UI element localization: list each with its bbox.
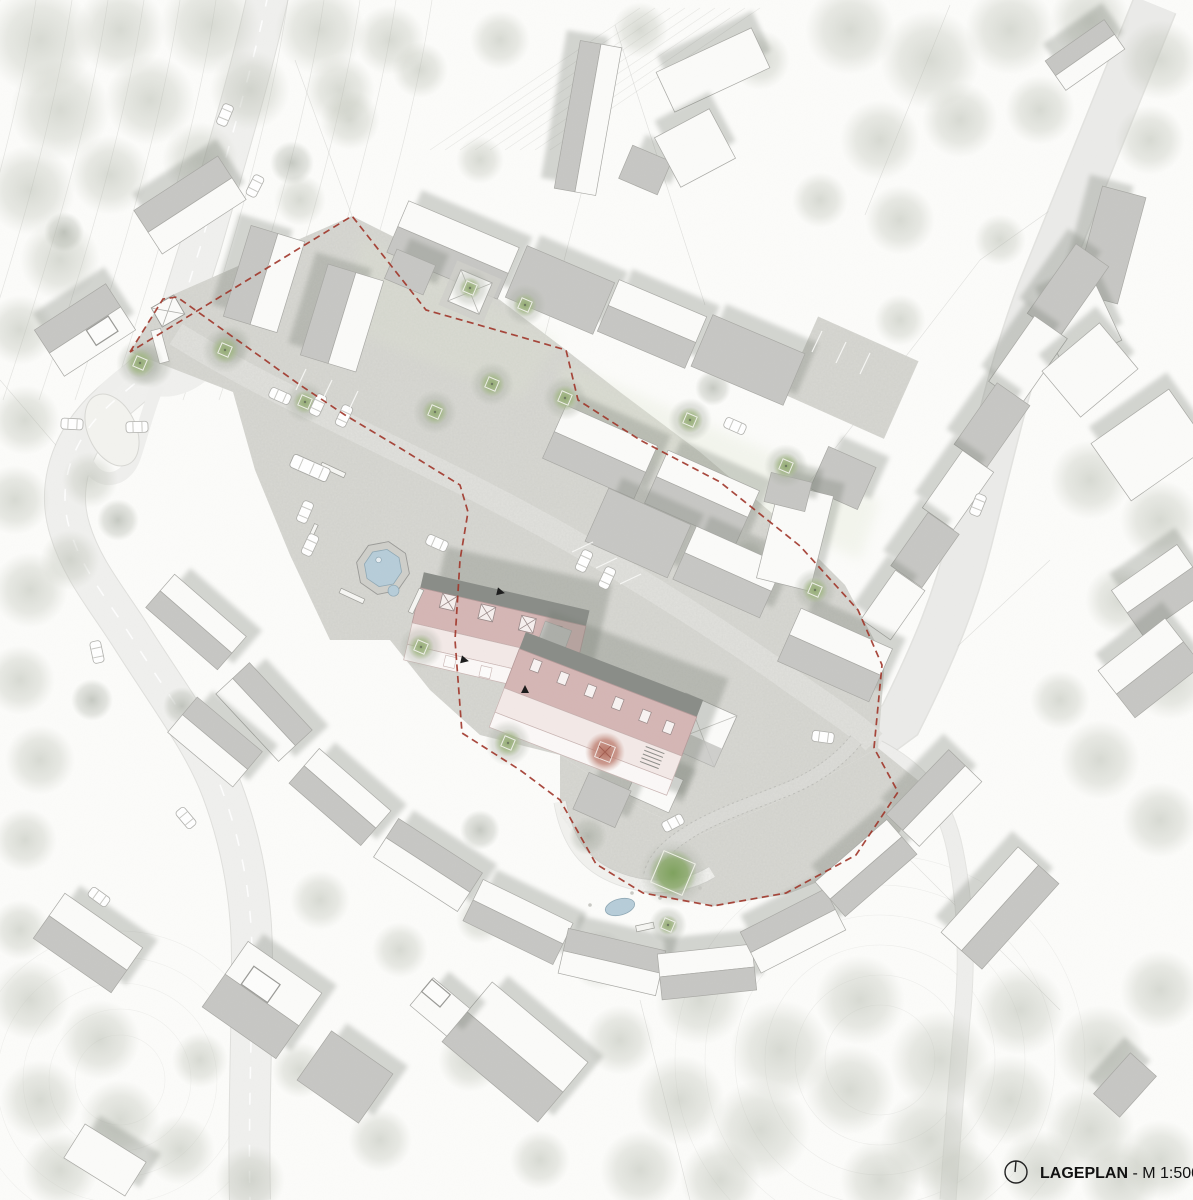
plan-scale: M 1:500 (1142, 1165, 1193, 1182)
site-plan: LAGEPLAN - M 1:500 (0, 0, 1193, 1200)
plan-title-text: LAGEPLAN - M 1:500 (1040, 1165, 1193, 1182)
site-plan-sheet: LAGEPLAN - M 1:500 (0, 0, 1193, 1200)
plan-title: LAGEPLAN (1040, 1165, 1128, 1182)
plan-title-separator: - (1128, 1165, 1142, 1182)
paper-grain (0, 0, 1193, 1200)
